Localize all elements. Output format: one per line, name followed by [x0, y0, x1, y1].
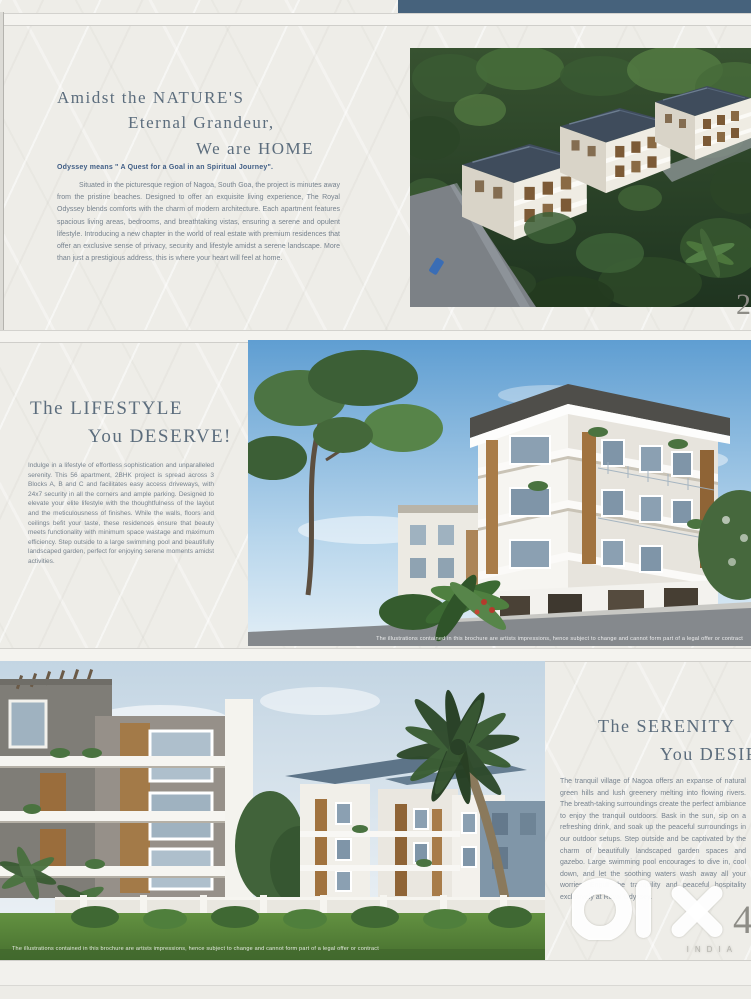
page-edge-band-bottom — [0, 960, 751, 985]
page-number-2: 2 — [736, 288, 751, 322]
top-edge-blue-bar — [398, 0, 751, 13]
olx-logo-icon — [572, 878, 750, 940]
nature-intro-line: Odyssey means " A Quest for a Goal in an… — [57, 164, 347, 171]
olx-watermark: INDIA — [572, 878, 750, 954]
serenity-heading-line-2: You DESIRE — [660, 744, 751, 765]
lifestyle-heading-line-2: You DESERVE! — [88, 426, 232, 448]
bottom-margin-strip — [0, 985, 751, 999]
street-view-photo: The illustrations contained in this broc… — [0, 661, 545, 960]
aerial-site-photo — [410, 48, 751, 307]
nature-body-paragraph: Situated in the picturesque region of Na… — [57, 180, 340, 265]
page-edge-band-lower — [0, 648, 751, 662]
olx-region-label: INDIA — [687, 945, 738, 954]
page-edge-band-top — [0, 13, 751, 26]
nature-heading-line-2: Eternal Grandeur, — [128, 113, 275, 133]
building-photo-caption: The illustrations contained in this broc… — [376, 636, 743, 642]
lifestyle-heading-line-1: The LIFESTYLE — [30, 398, 183, 420]
nature-heading-line-1: Amidst the NATURE'S — [57, 88, 244, 108]
brochure-photo-page: Amidst the NATURE'S Eternal Grandeur, We… — [0, 0, 751, 999]
page-left-edge-line — [3, 12, 4, 334]
serenity-heading-line-1: The SERENITY — [598, 716, 735, 737]
lifestyle-body-paragraph: Indulge in a lifestyle of effortless sop… — [28, 461, 214, 567]
page-number-4: 4 — [733, 896, 751, 943]
building-elevation-photo: The illustrations contained in this broc… — [248, 340, 751, 646]
page-left-edge-shade — [0, 12, 3, 334]
street-photo-caption: The illustrations contained in this broc… — [12, 946, 379, 952]
nature-heading-line-3: We are HOME — [196, 139, 314, 159]
